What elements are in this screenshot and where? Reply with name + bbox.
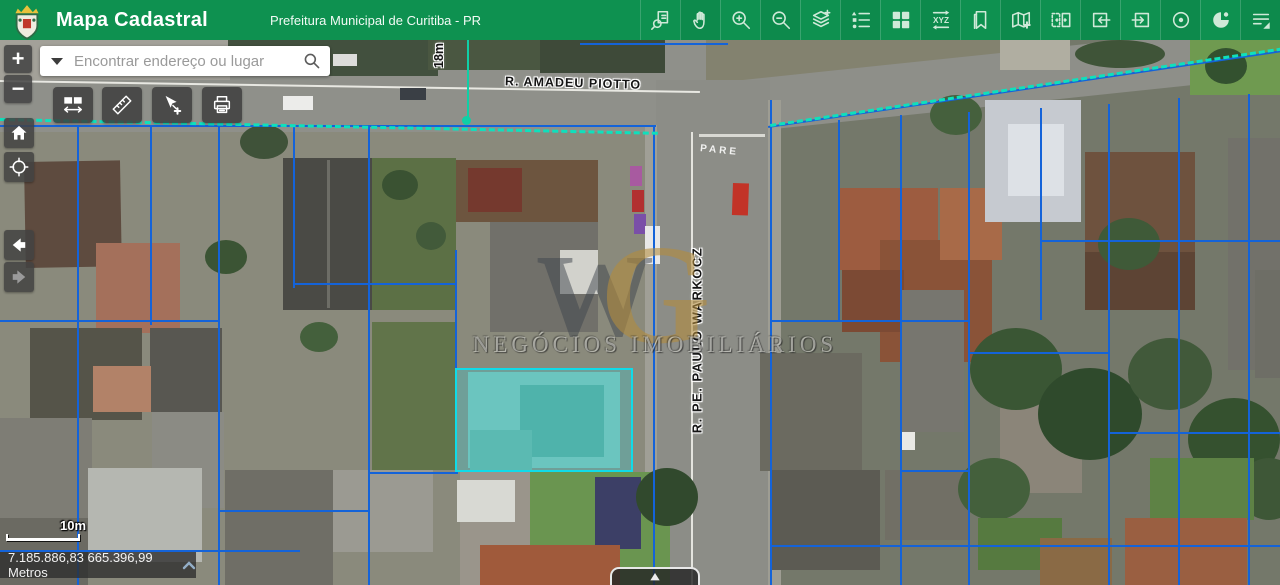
add-map-notes-button[interactable] [1000,0,1040,40]
home-button[interactable] [4,118,34,148]
extent-left-button[interactable] [1080,0,1120,40]
zoom-out-magnifier-button[interactable] [760,0,800,40]
locate-button[interactable] [4,152,34,182]
next-extent-button[interactable] [4,262,34,292]
caret-down-icon [51,58,63,65]
coordinates-readout: 7.185.886,83 665.396,99 Metros [8,550,174,580]
forward-arrow-icon [9,267,29,287]
scale-bar [6,534,80,541]
map-canvas[interactable]: R. AMADEU PIOTTO 18m R. PE. PAULO WARKOC… [0,40,1280,585]
xyz-coordinates-button[interactable]: XYZ [920,0,960,40]
measure-ruler-icon [111,94,133,116]
magnifier-icon [303,52,321,70]
swipe-compare-button[interactable] [1040,0,1080,40]
curitiba-coat-of-arms-logo [12,4,42,36]
zoom-in-button[interactable]: + [4,45,32,73]
pan-hand-button[interactable] [680,0,720,40]
print-button[interactable] [202,87,242,123]
search-source-dropdown[interactable] [40,46,74,76]
attribute-panel-toggle[interactable] [610,567,700,585]
zoom-in-magnifier-button[interactable] [720,0,760,40]
basemap-compare-button[interactable] [53,87,93,123]
previous-extent-button[interactable] [4,230,34,260]
home-icon [9,123,29,143]
add-layers-button[interactable] [800,0,840,40]
search-input[interactable] [74,53,294,70]
measure-button[interactable] [102,87,142,123]
around-point-button[interactable] [1160,0,1200,40]
map-controls-layer: + − [0,40,1280,585]
coordinates-bar: 7.185.886,83 665.396,99 Metros [0,552,196,578]
header-toolbar: XYZ [640,0,1280,40]
select-features-button[interactable] [152,87,192,123]
page-title: Mapa Cadastral [56,9,208,32]
arrow-up-icon [647,571,663,583]
search-submit-button[interactable] [294,46,330,76]
basemap-grid-button[interactable] [880,0,920,40]
back-arrow-icon [9,235,29,255]
coordinates-expand-button[interactable] [182,559,196,571]
scale-bar-label: 10m [60,518,86,533]
app-header: Mapa Cadastral Prefeitura Municipal de C… [0,0,1280,40]
legend-list-button[interactable] [840,0,880,40]
extent-right-button[interactable] [1120,0,1160,40]
bookmark-button[interactable] [960,0,1000,40]
mapa-cadastral-app: Mapa Cadastral Prefeitura Municipal de C… [0,0,1280,585]
locate-crosshair-icon [9,157,29,177]
page-subtitle: Prefeitura Municipal de Curitiba - PR [270,13,481,28]
find-features-button[interactable] [640,0,680,40]
basemap-compare-icon [62,94,84,116]
print-icon [211,94,233,116]
chevron-up-icon [182,559,196,571]
draw-menu-button[interactable] [1240,0,1280,40]
svg-text:XYZ: XYZ [932,16,948,25]
zoom-out-button[interactable]: − [4,75,32,103]
select-features-icon [161,94,183,116]
search-box [40,46,330,76]
overview-map-button[interactable] [1200,0,1240,40]
